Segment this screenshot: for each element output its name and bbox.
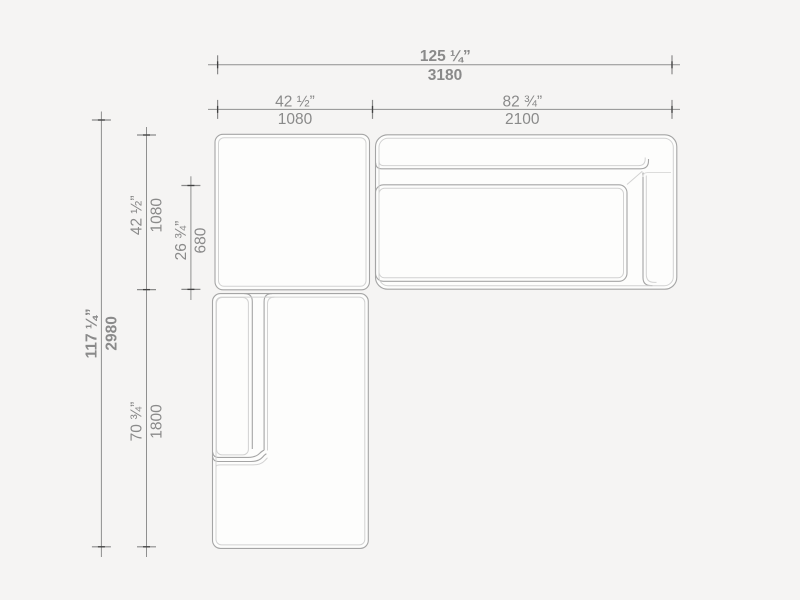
svg-text:1080: 1080 bbox=[278, 111, 313, 128]
svg-text:42 ½”: 42 ½” bbox=[129, 195, 146, 235]
svg-text:82 ¾”: 82 ¾” bbox=[502, 94, 542, 111]
svg-text:680: 680 bbox=[193, 227, 210, 253]
svg-text:2980: 2980 bbox=[103, 316, 120, 350]
svg-text:70 ¾”: 70 ¾” bbox=[129, 402, 146, 442]
svg-text:2100: 2100 bbox=[505, 111, 540, 128]
svg-text:1800: 1800 bbox=[148, 404, 165, 439]
svg-text:117 ¼”: 117 ¼” bbox=[84, 308, 101, 358]
svg-text:1080: 1080 bbox=[148, 198, 165, 233]
svg-text:42 ½”: 42 ½” bbox=[275, 94, 315, 111]
svg-text:3180: 3180 bbox=[428, 67, 462, 84]
svg-text:125 ¼”: 125 ¼” bbox=[420, 48, 471, 65]
svg-text:26 ¾”: 26 ¾” bbox=[173, 221, 190, 261]
